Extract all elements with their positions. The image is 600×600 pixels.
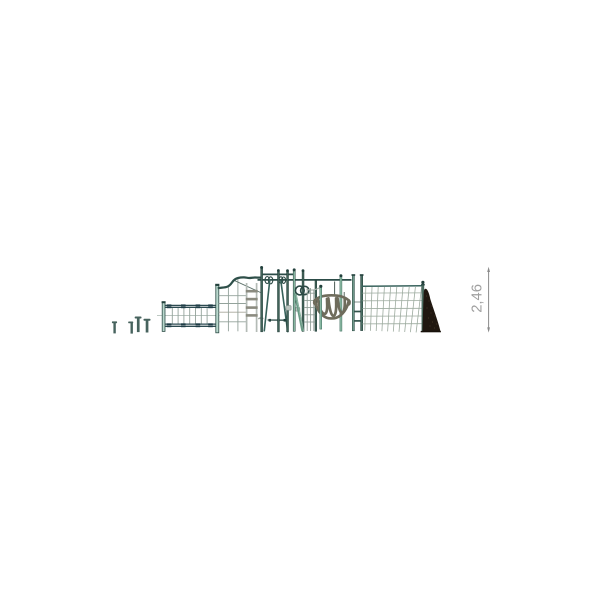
- svg-text:2,46: 2,46: [470, 284, 486, 313]
